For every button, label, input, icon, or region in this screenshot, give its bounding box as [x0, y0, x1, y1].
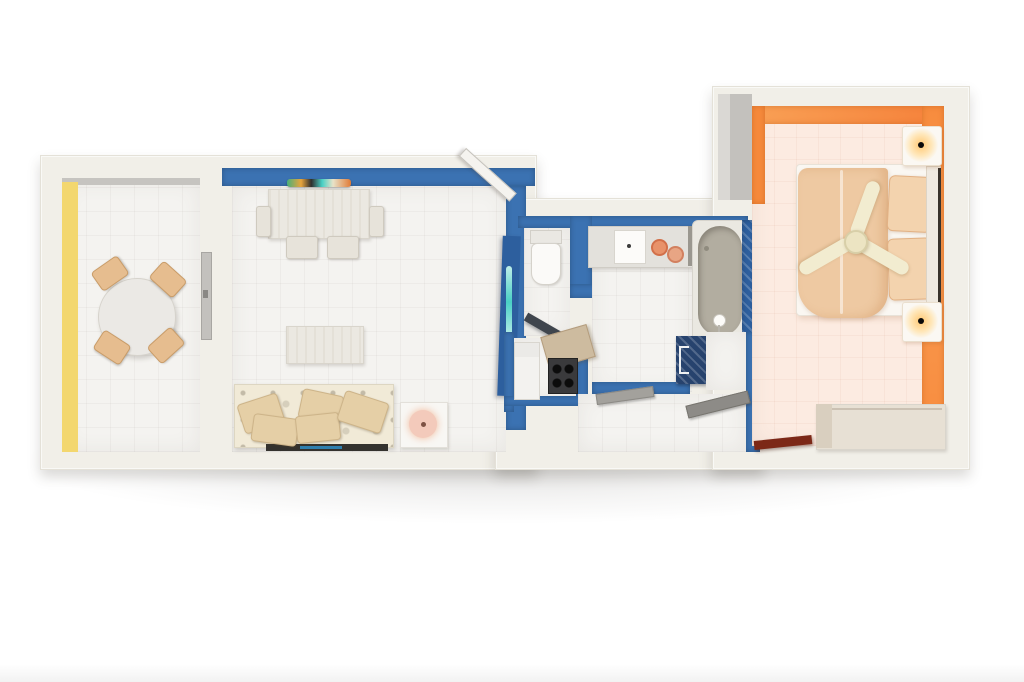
bedroom-left-orange-wall [752, 106, 765, 204]
colorful-wall-shelf [287, 179, 351, 187]
ceiling-fan-hub [844, 230, 868, 254]
coffee-table [286, 326, 364, 364]
dresser-side-panel [816, 404, 832, 448]
fridge [514, 342, 540, 400]
headboard-rail [938, 168, 941, 314]
dining-yellow-accent-wall [62, 182, 78, 452]
dresser [816, 404, 946, 450]
closet-niche-floor [706, 332, 746, 390]
toilet-bowl [531, 243, 561, 285]
desk-chair-bottom [286, 236, 318, 259]
toilet-tank [530, 230, 562, 244]
nightstand-lamp [918, 142, 924, 148]
bedroom-entry-niche-face [718, 94, 730, 200]
bedroom-top-orange-wall [752, 106, 944, 124]
sofa-pillow [295, 412, 342, 444]
nightstand-lamp [918, 318, 924, 324]
dining-door-handle [203, 290, 208, 298]
photo-bottom-edge [0, 664, 1024, 682]
sink-faucet [627, 244, 631, 248]
storage-cabinet-handle [679, 346, 689, 374]
dining-top-wall-face [62, 178, 200, 185]
gas-stove [548, 358, 578, 394]
floor-plan-canvas [0, 0, 1024, 682]
desk-chair-right [369, 206, 384, 237]
lamp-center-dot [421, 422, 426, 427]
towel-roll [667, 246, 684, 263]
desk-chair-bottom [327, 236, 359, 259]
desk-chair-left [256, 206, 271, 237]
living-desk-table [268, 189, 370, 239]
towel-roll [651, 239, 668, 256]
dresser-top-edge [832, 408, 942, 410]
bathtub-drain [704, 246, 709, 251]
sofa-base-accent [300, 446, 342, 449]
blue-door-glass-strip [506, 266, 512, 338]
